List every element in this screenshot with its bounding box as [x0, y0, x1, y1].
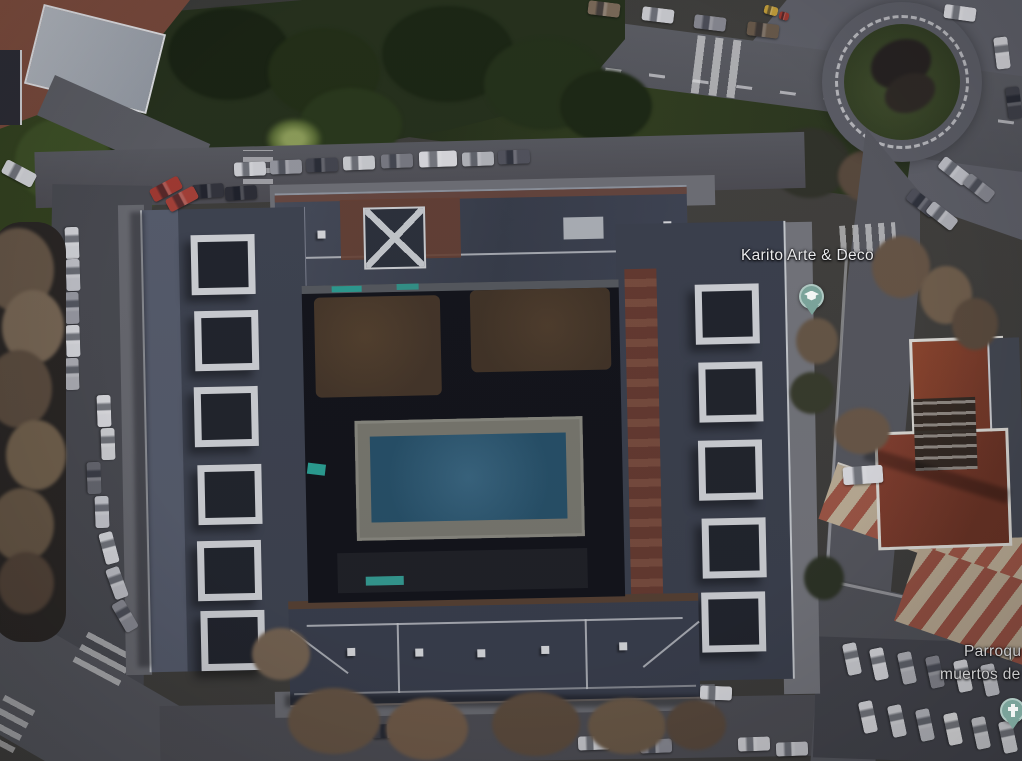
poi-pin-church[interactable] [1000, 698, 1022, 723]
rooftop-structure [702, 517, 767, 578]
inner-brick-facade [624, 269, 664, 640]
tree-canopy [790, 372, 834, 414]
tree-canopy [386, 698, 468, 760]
parked-car [65, 325, 80, 357]
parked-car [1005, 86, 1022, 119]
chimney [477, 649, 485, 657]
tree-canopy [952, 298, 998, 350]
parked-car [86, 462, 101, 494]
garden-dirt-bed [470, 288, 612, 373]
parked-car [738, 736, 770, 751]
swimming-pool [370, 432, 568, 522]
teal-awning [397, 284, 419, 290]
roof-ridge [307, 617, 683, 627]
parked-car [641, 6, 674, 24]
poi-pin-education[interactable] [799, 284, 824, 309]
roof-hip [643, 621, 700, 668]
rooftop-structure [197, 540, 262, 601]
parked-car [64, 292, 79, 324]
parked-car [96, 395, 111, 427]
roundabout [822, 2, 982, 162]
chimney [541, 646, 549, 654]
chimney [317, 230, 325, 238]
tree-canopy [666, 700, 726, 750]
parked-car [65, 259, 80, 291]
chimney [347, 648, 355, 656]
rooftop-structure [563, 217, 603, 240]
chimney [415, 649, 423, 657]
rooftop-structure [194, 310, 259, 371]
tree-canopy [252, 628, 310, 680]
parked-car [498, 149, 530, 164]
parked-car [270, 159, 302, 174]
roof-seam [397, 623, 400, 693]
parked-car [234, 161, 266, 176]
rooftop-structure [698, 361, 763, 422]
rooftop-structure [695, 283, 760, 344]
teal-tarp [307, 463, 326, 476]
parked-car [64, 227, 79, 259]
parked-car [306, 157, 338, 172]
crosswalk-top-mid [691, 35, 746, 98]
parked-van [419, 150, 458, 167]
tree-canopy [492, 692, 580, 756]
poi-label-karito[interactable]: Karito Arte & Deco [741, 247, 874, 265]
tree-canopy [560, 70, 652, 142]
roof-tower [363, 206, 426, 269]
poi-label-parroquia-line1[interactable]: Parroqu [964, 643, 1021, 661]
tree-canopy [0, 552, 54, 614]
parked-car [776, 741, 808, 756]
tree-canopy [588, 698, 666, 754]
parked-car [693, 14, 726, 32]
rooftop-structure [701, 591, 766, 652]
building-edge [0, 50, 22, 125]
rooftop-structure [194, 386, 259, 447]
inner-courtyard-balconies [913, 397, 977, 471]
parked-car [700, 685, 732, 700]
courtyard [302, 279, 626, 603]
parked-car [100, 428, 115, 460]
parked-van [842, 465, 883, 486]
rooftop-structure [190, 234, 255, 295]
poi-label-parroquia-line2[interactable]: muertos de [940, 666, 1021, 684]
pool-deck [354, 416, 584, 541]
garden-dirt-bed [314, 295, 442, 398]
parked-car [462, 151, 494, 166]
graduation-cap-icon [804, 291, 819, 303]
tree-canopy [834, 408, 890, 454]
tree-canopy [796, 318, 838, 364]
tree-canopy [288, 688, 380, 754]
parked-car [64, 358, 79, 390]
rooftop-structure [698, 439, 763, 500]
parked-car [225, 185, 258, 201]
parked-car [763, 4, 779, 16]
parked-car [343, 155, 375, 170]
teal-awning [332, 286, 362, 293]
chimney [619, 642, 627, 650]
cross-icon [1011, 704, 1015, 717]
tree-canopy [6, 420, 66, 490]
rooftop-structure [197, 464, 262, 525]
parked-car [746, 21, 779, 39]
apartment-block [95, 183, 796, 712]
courtyard-clutter [337, 548, 588, 593]
parked-car [381, 153, 413, 168]
parked-car [94, 496, 109, 528]
tree-canopy [804, 556, 844, 600]
roof-seam [585, 619, 588, 689]
satellite-map[interactable]: Karito Arte & Deco Parroqu muertos de t [0, 0, 1022, 761]
